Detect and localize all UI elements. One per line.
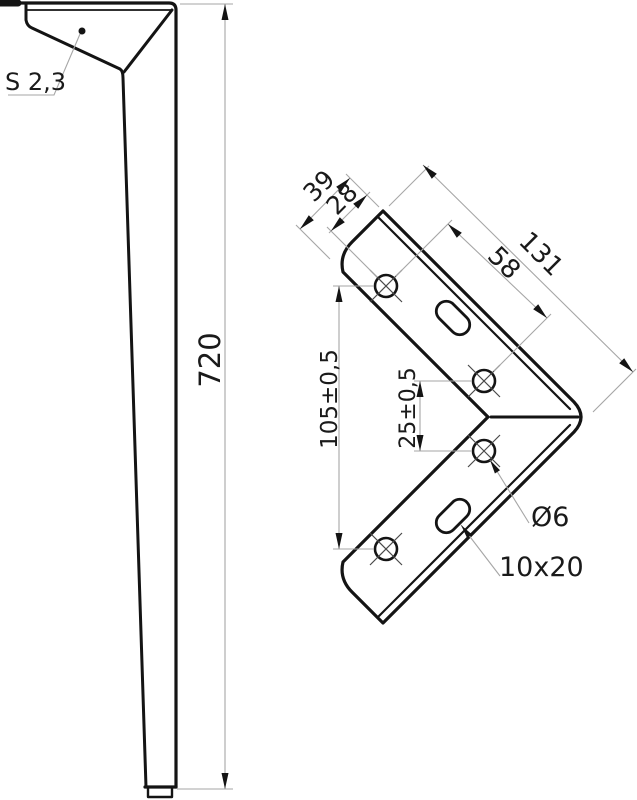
thickness-callout: S 2,3 xyxy=(5,28,86,97)
leg-foot-glide xyxy=(148,788,172,797)
slot-lower xyxy=(432,495,474,537)
extension-line-hole1 xyxy=(396,220,452,276)
leg-height-label: 720 xyxy=(193,332,227,387)
leg-gusset-edge xyxy=(124,10,172,72)
dimension-inner-hole-span: 25±0,5 xyxy=(396,367,471,451)
dimension-outer-hole-span: 105±0,5 xyxy=(317,286,374,549)
leg-hook-and-front-edge xyxy=(26,4,146,787)
drawing-sheet: S 2,3 720 xyxy=(0,0,637,800)
extension-line-inner xyxy=(296,225,330,259)
extension-line-hole xyxy=(327,227,377,277)
arrowhead-up xyxy=(336,286,343,302)
outer-hole-span-label: 105±0,5 xyxy=(317,349,343,449)
technical-drawing: S 2,3 720 xyxy=(0,0,637,800)
hole-diameter-label: Ø6 xyxy=(531,502,569,533)
dimension-leg-height: 720 xyxy=(177,4,233,789)
arrowhead-down xyxy=(222,773,229,789)
screw-hole-4 xyxy=(370,533,402,565)
dimension-line xyxy=(423,165,633,372)
hole-diameter-callout: Ø6 xyxy=(490,460,569,533)
leg-side-view xyxy=(0,3,176,797)
arm-length-label: 131 xyxy=(512,226,568,282)
dimension-arm-length: 131 xyxy=(389,165,636,412)
screw-hole-3 xyxy=(468,435,500,467)
extension-line-end xyxy=(389,166,429,206)
thickness-label: S 2,3 xyxy=(5,68,66,96)
thickness-leader-dot xyxy=(79,28,86,35)
slot-upper xyxy=(432,297,474,339)
slot-size-label: 10x20 xyxy=(499,552,584,583)
arrowhead-down xyxy=(336,533,343,549)
arrowhead-up xyxy=(222,4,229,20)
slot-size-callout: 10x20 xyxy=(461,525,584,583)
extension-line-apex xyxy=(593,369,636,412)
inner-hole-span-label: 25±0,5 xyxy=(396,367,421,448)
leg-top-plate-and-back-edge xyxy=(2,3,176,787)
